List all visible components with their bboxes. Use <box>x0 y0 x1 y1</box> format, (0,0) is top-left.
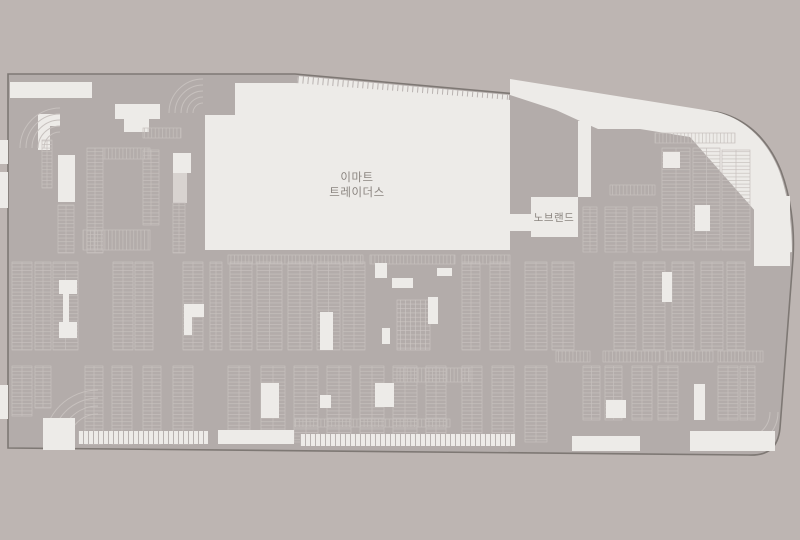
island-structure <box>320 312 333 350</box>
surface-patch <box>578 121 591 197</box>
site-plan-svg: 이마트 트레이더스 노브랜드 <box>0 0 800 540</box>
island-structure <box>63 294 69 322</box>
parking-block <box>83 230 150 250</box>
surface-patch <box>754 196 790 266</box>
surface-patch-dim <box>173 173 187 203</box>
island-structure <box>43 418 75 450</box>
island-structure <box>375 383 394 407</box>
island-structure <box>59 322 77 338</box>
parking-block <box>370 255 455 264</box>
surface-patch <box>0 172 8 208</box>
parking-block <box>718 351 763 362</box>
label-emart-traders-line2[interactable]: 트레이더스 <box>329 186 384 199</box>
parking-block <box>665 351 713 362</box>
parking-block <box>228 255 363 264</box>
island-structure <box>695 205 710 231</box>
building-emart-traders[interactable] <box>205 83 510 250</box>
island-structure <box>392 278 413 288</box>
parking-block <box>610 185 655 195</box>
island-structure <box>572 436 640 451</box>
surface-patch <box>58 155 75 202</box>
island-structure <box>261 383 279 418</box>
strip-ticks <box>78 431 208 444</box>
parking-block <box>556 351 590 362</box>
surface-patch <box>115 104 160 119</box>
parking-block <box>143 128 181 138</box>
parking-block <box>603 351 660 362</box>
cart-area-grid <box>397 300 430 350</box>
island-structure <box>663 152 680 168</box>
marked-stall-strip <box>300 434 515 446</box>
island-structure <box>606 400 626 418</box>
surface-patch <box>0 140 8 164</box>
parking-block <box>462 255 510 264</box>
label-emart-traders-line1[interactable]: 이마트 <box>340 171 373 184</box>
surface-patch <box>173 153 191 173</box>
island-structure <box>218 430 294 444</box>
island-structure <box>184 305 192 335</box>
island-structure <box>437 268 452 276</box>
parking-block <box>655 133 735 143</box>
island-structure <box>694 384 705 420</box>
surface-patch <box>0 385 8 419</box>
island-structure <box>320 395 331 408</box>
island-structure <box>690 431 775 451</box>
island-structure <box>59 280 77 294</box>
label-nobrand[interactable]: 노브랜드 <box>534 212 575 224</box>
surface-patch <box>10 82 92 98</box>
island-structure <box>662 272 672 302</box>
island-structure <box>428 297 438 324</box>
island-structure <box>382 328 390 344</box>
parking-block <box>103 148 150 159</box>
strip-ticks <box>300 434 515 446</box>
marked-stall-strip <box>78 431 208 444</box>
map-canvas[interactable]: 이마트 트레이더스 노브랜드 <box>0 0 800 540</box>
island-structure <box>375 263 387 278</box>
parking-block <box>397 368 470 382</box>
parking-block <box>295 419 450 427</box>
building-nobrand[interactable] <box>505 214 531 231</box>
